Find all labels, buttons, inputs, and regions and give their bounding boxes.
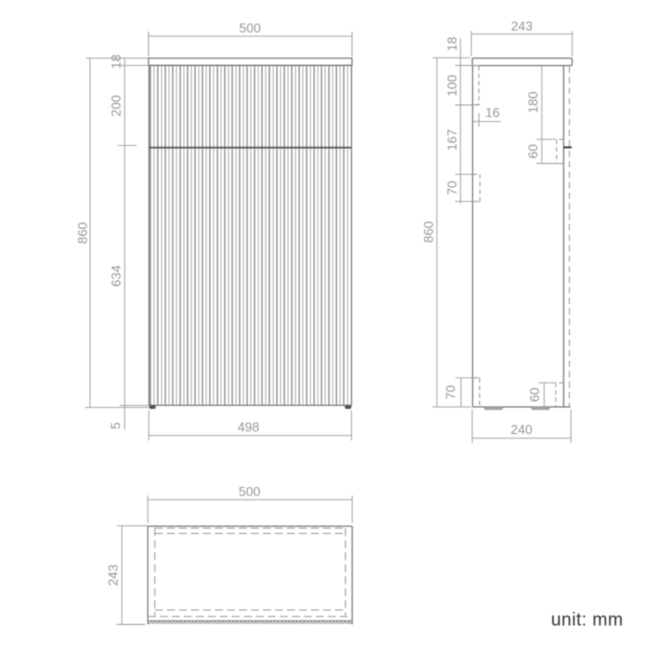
- svg-text:100: 100: [444, 75, 459, 97]
- svg-text:500: 500: [239, 20, 261, 35]
- svg-text:860: 860: [421, 221, 436, 243]
- svg-text:167: 167: [444, 129, 459, 151]
- svg-text:500: 500: [239, 484, 261, 499]
- svg-text:16: 16: [485, 105, 499, 120]
- svg-text:243: 243: [105, 564, 120, 586]
- svg-text:180: 180: [525, 92, 540, 114]
- svg-text:240: 240: [511, 422, 533, 437]
- svg-text:60: 60: [527, 388, 542, 402]
- svg-text:200: 200: [109, 95, 124, 117]
- svg-text:498: 498: [238, 419, 260, 434]
- svg-text:18: 18: [444, 37, 459, 51]
- svg-text:60: 60: [525, 144, 540, 158]
- svg-text:243: 243: [511, 18, 533, 33]
- svg-text:70: 70: [444, 181, 459, 195]
- svg-text:unit: mm: unit: mm: [551, 610, 623, 630]
- svg-text:860: 860: [75, 222, 90, 244]
- svg-text:5: 5: [108, 422, 123, 429]
- svg-text:18: 18: [109, 54, 124, 68]
- svg-text:70: 70: [443, 385, 458, 399]
- svg-text:634: 634: [109, 265, 124, 287]
